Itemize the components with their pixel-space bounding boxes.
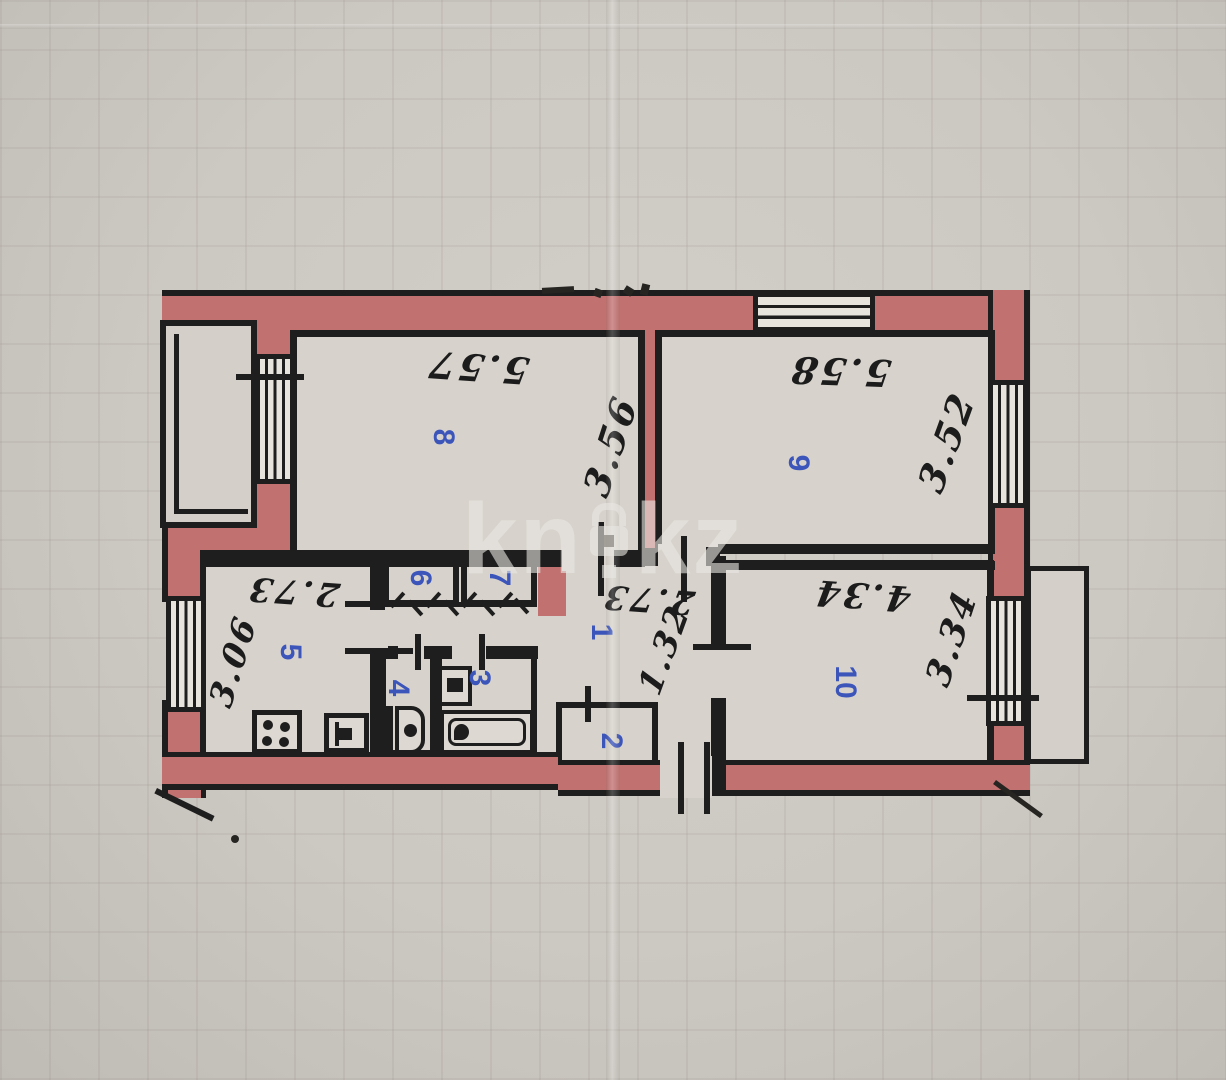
window-room10-balcony <box>986 596 1026 726</box>
lock-body <box>590 526 628 556</box>
sink-tap <box>337 728 352 740</box>
balcony-right <box>1026 566 1089 764</box>
door-tick-wc <box>415 634 421 670</box>
door-tick-kitchen-bottom <box>345 648 413 654</box>
sink-icon <box>324 713 369 753</box>
room-10-number: 10 <box>830 665 860 698</box>
lock-icon <box>590 503 628 578</box>
room-6-number: 6 <box>405 570 435 587</box>
balcony-left <box>160 320 257 528</box>
ink-dot <box>231 835 239 843</box>
toilet-icon <box>395 706 425 754</box>
entrance-tick-left <box>678 742 684 814</box>
toilet-bowl-dot <box>404 724 417 737</box>
balcony-left-inner-line <box>174 334 179 514</box>
window-kitchen <box>166 596 206 712</box>
outer-wall-bottom-left <box>162 752 558 790</box>
stove-burner <box>279 737 289 747</box>
sink-line <box>335 722 339 746</box>
door-kitchen <box>366 610 388 652</box>
watermark-text-left: kn <box>462 498 583 580</box>
scanned-floor-plan: 8 9 5 6 7 4 3 1 2 10 5.57 3.56 5.58 3.52… <box>0 0 1226 1080</box>
room-4-number: 4 <box>383 680 413 697</box>
fold-crease-horizontal <box>0 24 1226 29</box>
room-8-number: 8 <box>428 429 458 446</box>
room-5-number: 5 <box>275 644 305 661</box>
lock-shackle <box>592 503 626 526</box>
room-5-width-dim: 2.73 <box>244 572 342 611</box>
entrance-tick-right <box>704 742 710 814</box>
wall-room9-room10-b <box>718 561 995 570</box>
stove-burner <box>263 720 273 730</box>
outer-wall-bottom-right <box>558 760 1030 796</box>
watermark: kn kz <box>462 498 744 580</box>
wall-room9-room10-a <box>718 544 995 553</box>
washbasin-tap <box>447 678 463 692</box>
room-9-width-dim: 5.58 <box>786 351 893 391</box>
watermark-text-right: kz <box>635 498 745 580</box>
watermark-dot <box>602 565 616 578</box>
room-9-number: 9 <box>783 455 813 472</box>
stove-icon <box>252 710 302 754</box>
stove-burner <box>262 736 272 746</box>
door-tick-bathroom <box>479 634 485 670</box>
window-room9-top <box>753 292 875 332</box>
room-10-width-dim: 4.34 <box>810 574 913 615</box>
toilet-tank <box>383 706 393 754</box>
balcony-left-inner-line-bottom <box>174 509 248 514</box>
balcony-door-tick-left <box>236 374 304 380</box>
door-room10 <box>708 646 728 698</box>
bathtub-icon <box>440 710 534 754</box>
lock-keyhole <box>604 535 614 547</box>
bathtub-drain <box>454 724 469 740</box>
room-3-number: 3 <box>464 670 494 687</box>
stove-burner <box>280 722 290 732</box>
window-room9-right <box>988 380 1028 508</box>
room-8-width-dim: 5.57 <box>424 345 532 389</box>
door-tick-room2 <box>585 686 591 722</box>
door-tick-room10 <box>693 644 751 650</box>
balcony-door-tick-right <box>967 695 1039 701</box>
